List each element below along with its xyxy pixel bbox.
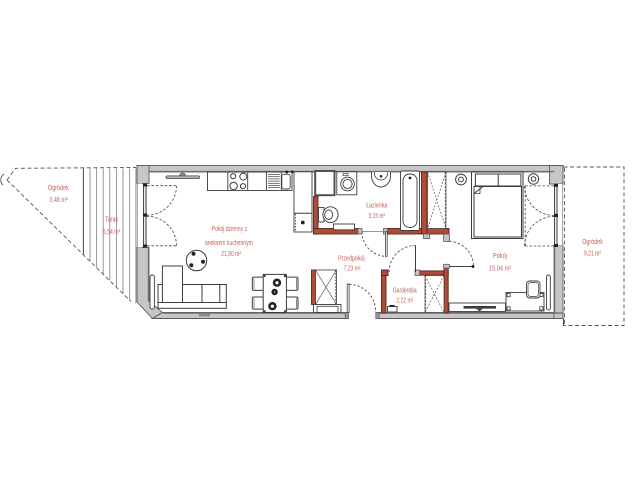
svg-text:Łazienka: Łazienka xyxy=(366,201,388,210)
svg-text:5,54 m²: 5,54 m² xyxy=(103,227,121,236)
svg-text:5,15 m²: 5,15 m² xyxy=(369,211,386,220)
svg-text:Przedpokój: Przedpokój xyxy=(338,254,365,263)
svg-text:9,21 m²: 9,21 m² xyxy=(584,249,601,258)
svg-text:7,23 m²: 7,23 m² xyxy=(344,263,361,272)
svg-text:Ogródek: Ogródek xyxy=(582,237,603,246)
svg-text:15,04 m²: 15,04 m² xyxy=(489,264,512,273)
svg-text:Garderoba: Garderoba xyxy=(393,286,418,295)
svg-text:Pokój: Pokój xyxy=(493,251,507,260)
svg-text:21,90 m²: 21,90 m² xyxy=(221,249,241,258)
svg-text:Ogródek: Ogródek xyxy=(48,183,69,192)
svg-text:3,46 m²: 3,46 m² xyxy=(49,195,68,204)
svg-text:Pokój dzienny z: Pokój dzienny z xyxy=(212,224,247,233)
svg-text:2,22 m²: 2,22 m² xyxy=(396,296,413,305)
svg-text:Taras: Taras xyxy=(105,215,118,224)
svg-text:aneksem kuchennym: aneksem kuchennym xyxy=(205,238,253,247)
